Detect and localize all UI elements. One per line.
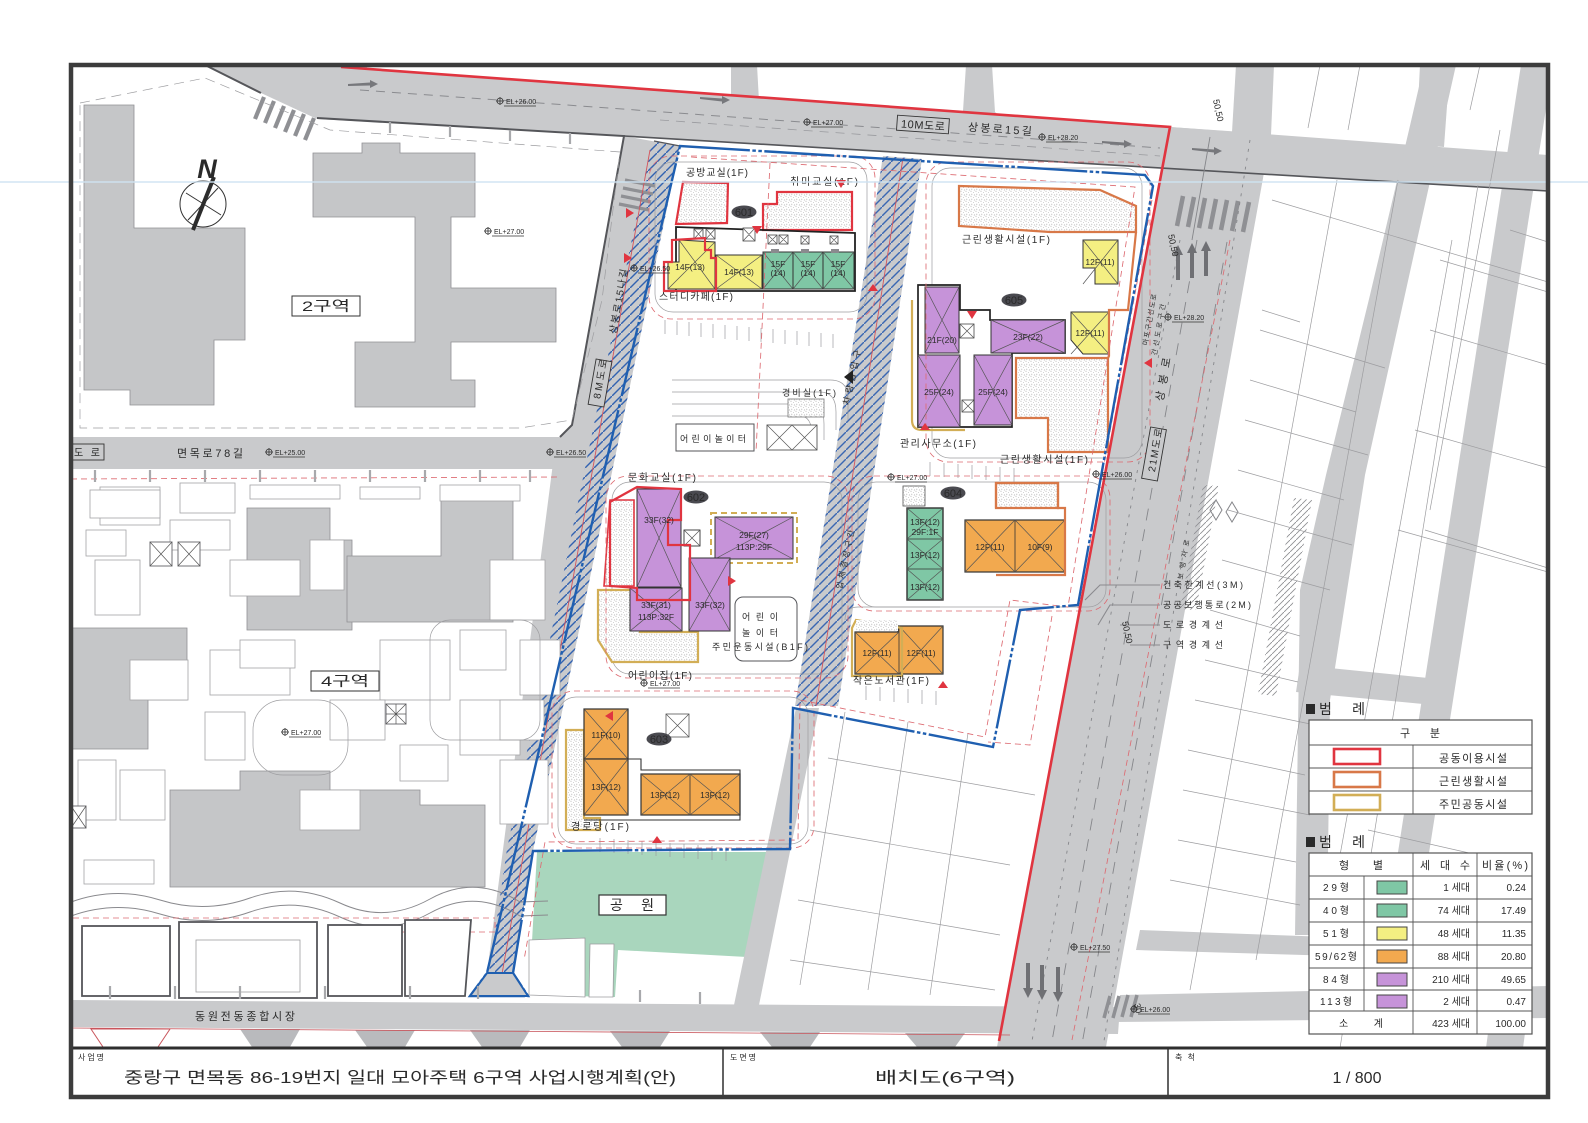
svg-text:EL+27.00: EL+27.00 (494, 229, 524, 236)
svg-text:EL+27.00: EL+27.00 (650, 681, 680, 688)
svg-text:33F(32): 33F(32) (695, 600, 725, 610)
svg-text:공공보행통로(2M): 공공보행통로(2M) (1163, 599, 1251, 610)
svg-text:중랑구 면목동 86-19번지 일대 모아주택 6구역 사업: 중랑구 면목동 86-19번지 일대 모아주택 6구역 사업시행계획(안) (124, 1069, 676, 1087)
svg-text:0.24: 0.24 (1507, 883, 1527, 894)
svg-text:(14): (14) (800, 268, 815, 278)
svg-text:14F(13): 14F(13) (675, 262, 705, 272)
svg-text:604: 604 (944, 488, 962, 500)
svg-text:EL+27.00: EL+27.00 (813, 120, 843, 127)
svg-text:40형: 40형 (1323, 905, 1349, 917)
svg-text:EL+26.00: EL+26.00 (1102, 472, 1132, 479)
svg-text:11F(10): 11F(10) (591, 730, 620, 740)
svg-text:12F(11): 12F(11) (906, 648, 935, 658)
svg-text:48 세대: 48 세대 (1438, 928, 1470, 940)
svg-text:17.49: 17.49 (1501, 906, 1526, 917)
svg-text:12F(11): 12F(11) (862, 648, 891, 658)
svg-text:주민운동시설(B1F): 주민운동시설(B1F) (712, 642, 808, 652)
svg-text:602: 602 (687, 492, 705, 504)
svg-text:12F(11): 12F(11) (1085, 257, 1114, 267)
svg-text:공 원: 공 원 (610, 897, 654, 913)
svg-text:603: 603 (650, 734, 668, 746)
svg-text:605: 605 (1005, 295, 1023, 307)
svg-text:25F(24): 25F(24) (978, 387, 1008, 397)
svg-text:4구역: 4구역 (321, 673, 369, 689)
svg-text:소 계: 소 계 (1339, 1018, 1383, 1030)
svg-text:29F(27): 29F(27) (739, 530, 769, 540)
svg-text:113P:32F: 113P:32F (638, 612, 674, 622)
svg-text:74 세대: 74 세대 (1438, 905, 1470, 917)
svg-text:25F(24): 25F(24) (924, 387, 954, 397)
svg-text:13F(12): 13F(12) (910, 517, 940, 527)
svg-text:88 세대: 88 세대 (1438, 951, 1470, 963)
svg-text:100.00: 100.00 (1495, 1019, 1526, 1030)
svg-text:10F(9): 10F(9) (1027, 542, 1052, 552)
svg-text:13F(12): 13F(12) (910, 550, 940, 560)
svg-text:29F:1F: 29F:1F (912, 527, 939, 537)
svg-text:EL+27.00: EL+27.00 (897, 475, 927, 482)
svg-text:도면명: 도면명 (730, 1052, 756, 1062)
svg-text:12F(11): 12F(11) (1075, 328, 1104, 338)
svg-text:EL+26.00: EL+26.00 (506, 99, 536, 106)
svg-text:14F(13): 14F(13) (724, 267, 754, 277)
svg-text:0.47: 0.47 (1507, 997, 1527, 1008)
svg-text:세 대 수: 세 대 수 (1420, 859, 1470, 872)
svg-text:29형: 29형 (1323, 882, 1349, 894)
svg-text:13F(12): 13F(12) (700, 790, 730, 800)
svg-text:13F(12): 13F(12) (591, 782, 621, 792)
svg-text:범 례: 범 례 (1319, 701, 1365, 717)
svg-text:배치도(6구역): 배치도(6구역) (875, 1069, 1015, 1087)
svg-text:근린생활시설(1F): 근린생활시설(1F) (1000, 453, 1088, 466)
svg-text:601: 601 (735, 207, 753, 219)
svg-text:경비실(1F): 경비실(1F) (782, 387, 836, 398)
svg-text:1 세대: 1 세대 (1443, 882, 1470, 894)
svg-text:N: N (197, 154, 217, 184)
svg-text:경로당(1F): 경로당(1F) (571, 820, 629, 833)
svg-text:113P:29F: 113P:29F (736, 542, 772, 552)
svg-text:축 척: 축 척 (1175, 1053, 1195, 1062)
svg-text:210 세대: 210 세대 (1432, 974, 1470, 986)
svg-text:면목로78길: 면목로78길 (177, 447, 243, 460)
svg-text:EL+25.00: EL+25.00 (275, 450, 305, 457)
svg-text:84형: 84형 (1323, 974, 1349, 986)
svg-text:2 세대: 2 세대 (1443, 996, 1470, 1008)
svg-text:구 분: 구 분 (1400, 728, 1440, 740)
svg-text:(14): (14) (830, 268, 845, 278)
svg-text:33F(32): 33F(32) (644, 515, 674, 525)
svg-text:13F(12): 13F(12) (650, 790, 680, 800)
svg-text:EL+28.20: EL+28.20 (1048, 135, 1078, 142)
svg-text:13F(12): 13F(12) (910, 582, 940, 592)
svg-text:범 례: 범 례 (1319, 834, 1365, 850)
svg-text:1 / 800: 1 / 800 (1333, 1070, 1382, 1087)
svg-text:EL+28.20: EL+28.20 (1174, 315, 1204, 322)
svg-text:형 별: 형 별 (1339, 859, 1383, 872)
svg-text:공방교실(1F): 공방교실(1F) (686, 167, 748, 179)
svg-text:12F(11): 12F(11) (975, 542, 1004, 552)
svg-text:(14): (14) (770, 268, 785, 278)
svg-text:사업명: 사업명 (78, 1052, 104, 1062)
svg-text:관리사무소(1F): 관리사무소(1F) (900, 438, 976, 450)
svg-text:21F(20): 21F(20) (927, 335, 957, 345)
svg-text:EL+27.50: EL+27.50 (1080, 945, 1110, 952)
svg-text:33F(31): 33F(31) (641, 600, 671, 610)
svg-text:51형: 51형 (1323, 928, 1349, 940)
svg-text:어린이: 어린이 (742, 612, 778, 622)
svg-text:113형: 113형 (1320, 996, 1352, 1008)
svg-text:작은노서관(1F): 작은노서관(1F) (853, 675, 929, 687)
svg-text:2구역: 2구역 (302, 298, 350, 314)
svg-text:건축한계선(3M): 건축한계선(3M) (1163, 579, 1243, 590)
svg-text:놀이터: 놀이터 (742, 628, 778, 638)
svg-text:EL+26.50: EL+26.50 (640, 266, 670, 273)
svg-text:11.35: 11.35 (1502, 929, 1527, 940)
svg-text:스터디카페(1F): 스터디카페(1F) (659, 291, 733, 303)
svg-text:20.80: 20.80 (1501, 952, 1526, 963)
svg-text:문화교실(1F): 문화교실(1F) (628, 472, 696, 484)
svg-text:49.65: 49.65 (1501, 975, 1526, 986)
svg-text:59/62형: 59/62형 (1315, 951, 1357, 963)
svg-text:23F(22): 23F(22) (1013, 332, 1043, 342)
svg-text:근린생활시설(1F): 근린생활시설(1F) (962, 233, 1050, 246)
svg-text:423 세대: 423 세대 (1432, 1018, 1470, 1030)
svg-text:EL+26.50: EL+26.50 (556, 450, 586, 457)
svg-text:EL+26.00: EL+26.00 (1140, 1007, 1170, 1014)
svg-text:EL+27.00: EL+27.00 (291, 730, 321, 737)
